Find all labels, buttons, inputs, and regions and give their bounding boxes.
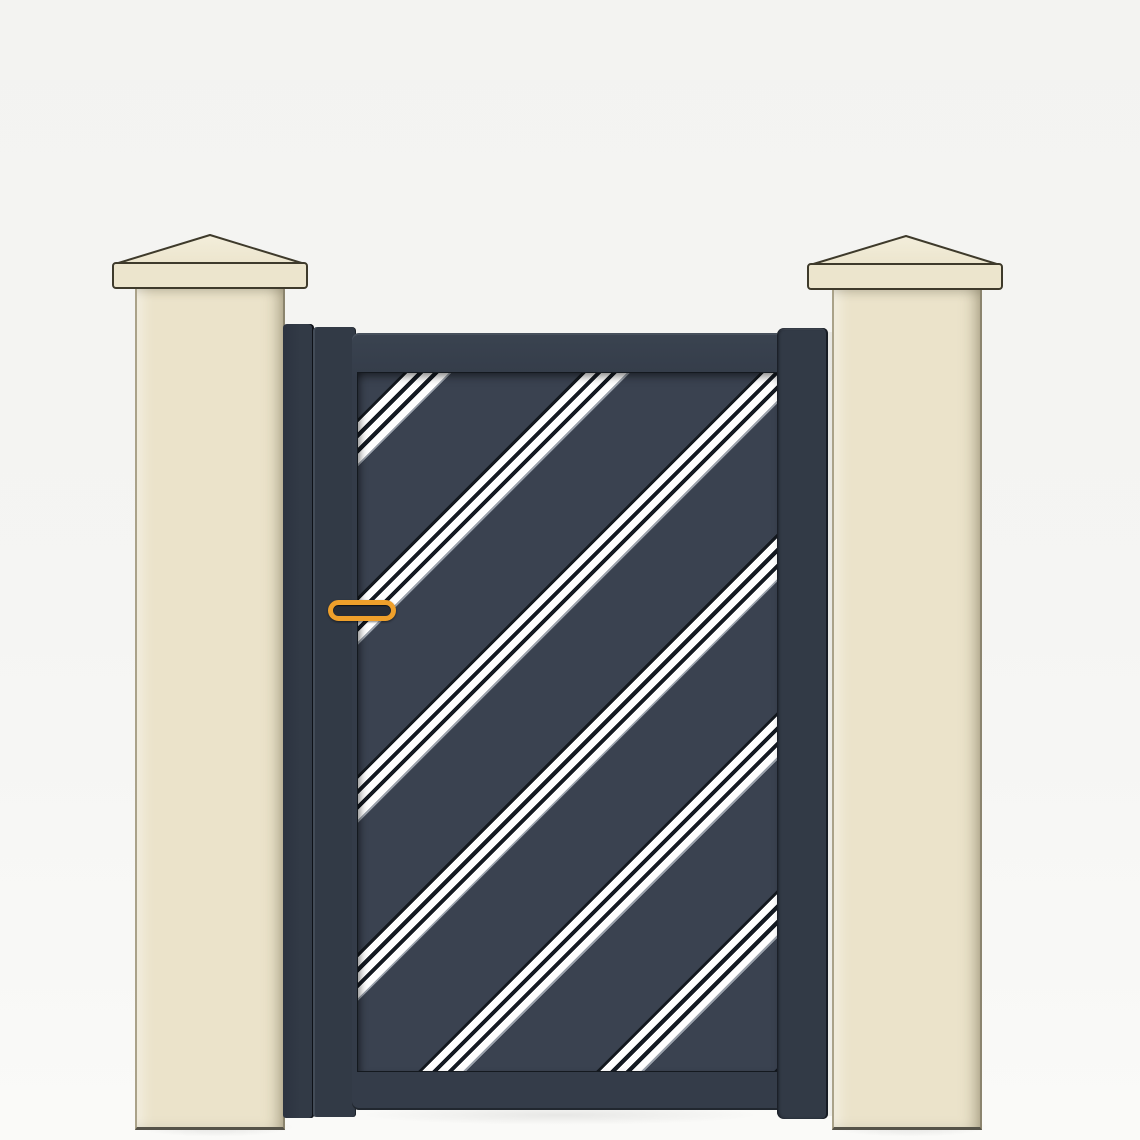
left-pillar-cap <box>105 229 315 293</box>
left-mounting-post-inner <box>313 327 356 1117</box>
gate-striped-panel <box>358 373 777 1071</box>
left-cap-slab <box>113 263 307 288</box>
product-render-scene <box>0 0 1140 1140</box>
gate-handle <box>328 600 396 621</box>
left-mounting-post-outer <box>283 324 314 1118</box>
right-cap-slab <box>808 264 1002 289</box>
left-cap-pyramid <box>115 235 305 264</box>
right-gate-stile <box>777 328 828 1119</box>
gate-leaf <box>352 333 777 1110</box>
right-pillar-body <box>832 289 982 1130</box>
right-stile-gap <box>828 332 832 1116</box>
left-pillar-body <box>135 288 285 1130</box>
right-cap-pyramid <box>810 236 1000 265</box>
right-pillar-cap <box>800 230 1010 294</box>
